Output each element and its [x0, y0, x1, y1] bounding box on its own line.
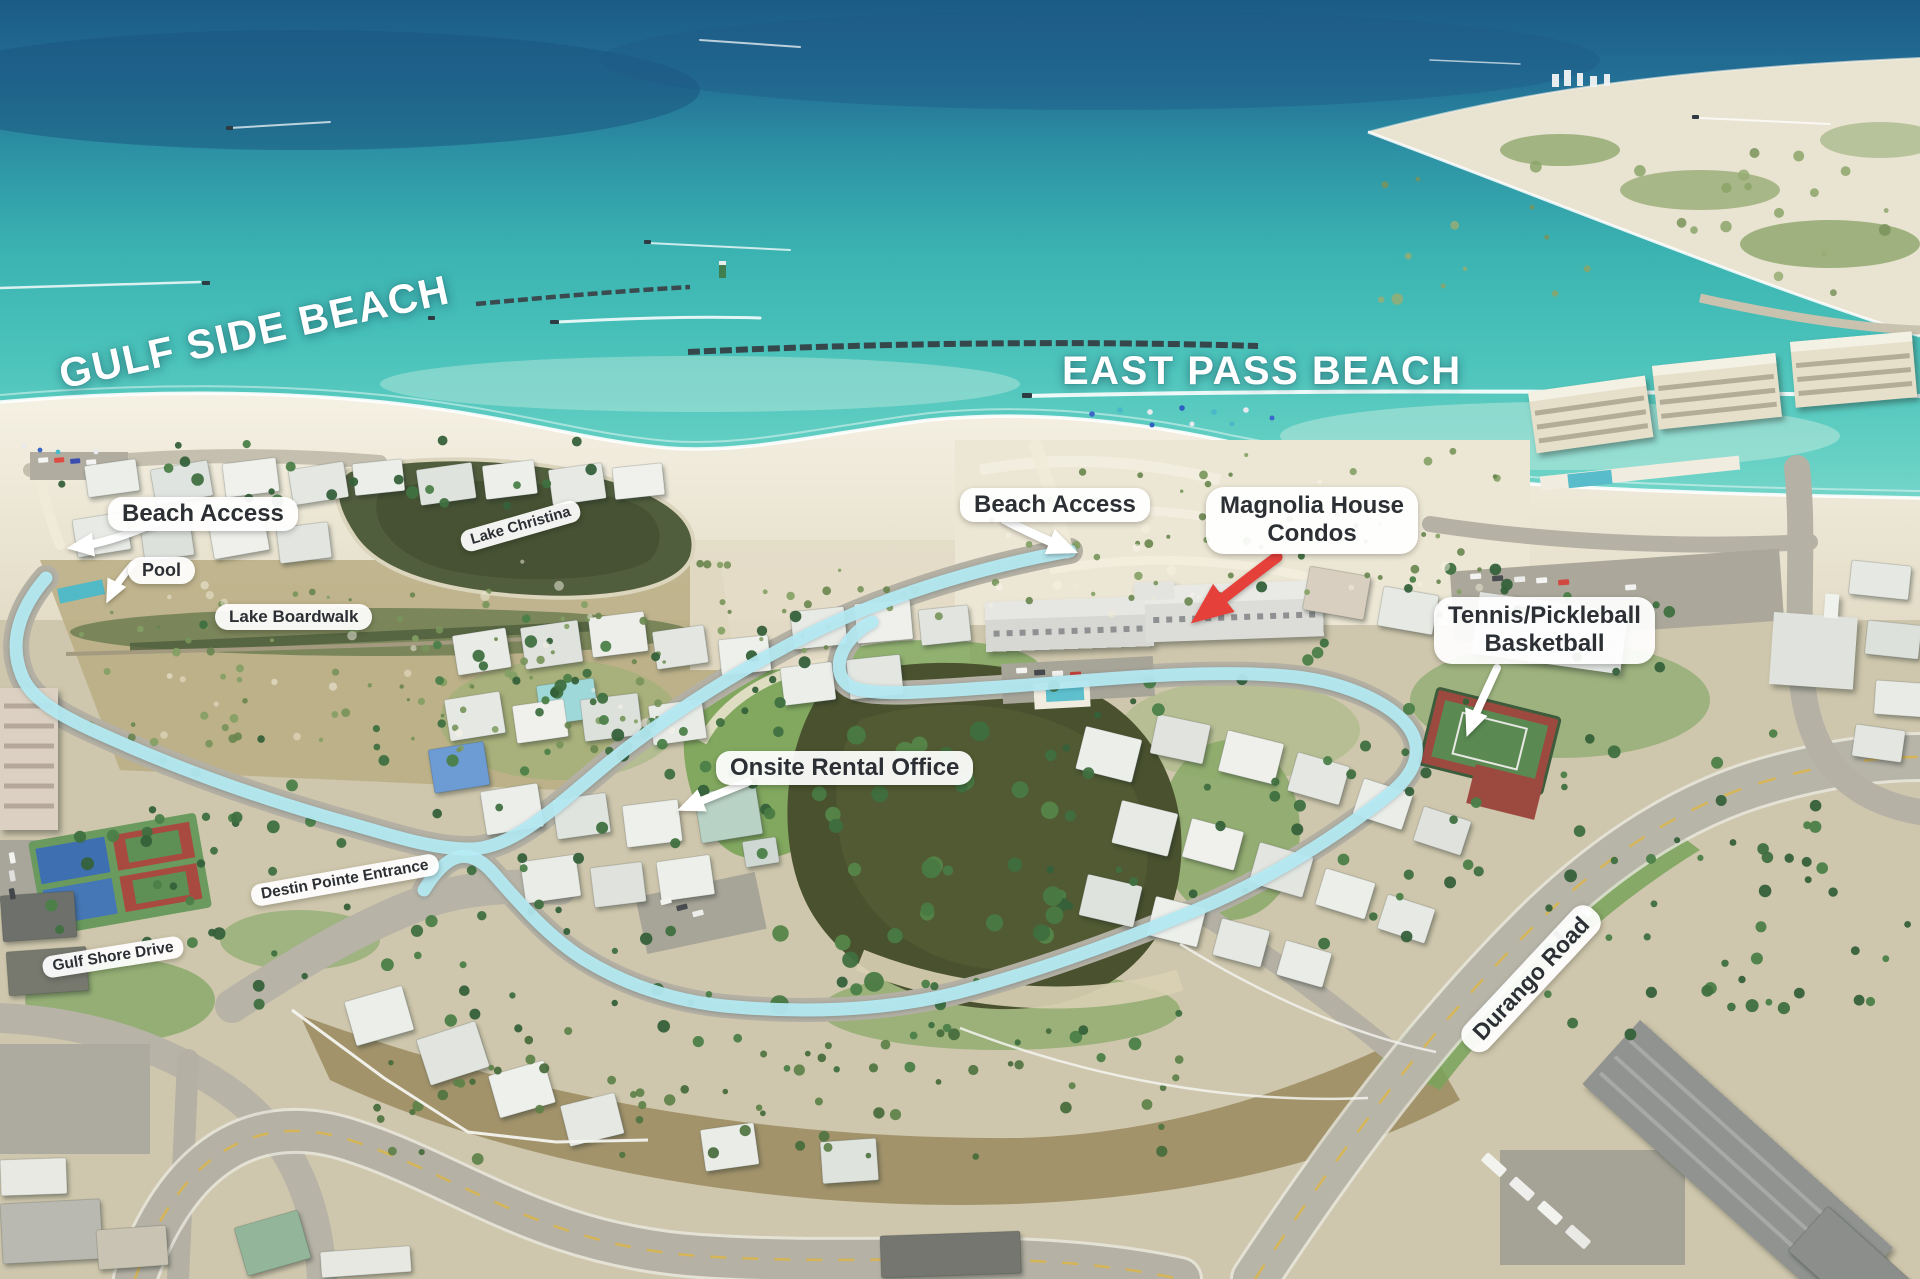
annotated-aerial-map: GULF SIDE BEACH EAST PASS BEACH Beach Ac…	[0, 0, 1920, 1279]
label-lake-boardwalk: Lake Boardwalk	[215, 604, 372, 630]
label-east-pass-beach: EAST PASS BEACH	[1062, 349, 1462, 394]
label-onsite-rental-office: Onsite Rental Office	[716, 751, 973, 785]
label-beach-access-west: Beach Access	[108, 497, 298, 531]
label-beach-access-east: Beach Access	[960, 488, 1150, 522]
label-pool: Pool	[128, 557, 195, 584]
label-magnolia-line2: Condos	[1220, 520, 1404, 548]
condo-tower-west	[0, 688, 58, 830]
label-magnolia-house-condos: Magnolia House Condos	[1206, 487, 1418, 554]
label-tennis-line1: Tennis/Pickleball	[1448, 602, 1641, 630]
label-magnolia-line1: Magnolia House	[1220, 492, 1404, 520]
label-tennis-line2: Basketball	[1448, 630, 1641, 658]
label-tennis-pickleball-basketball: Tennis/Pickleball Basketball	[1434, 597, 1655, 664]
